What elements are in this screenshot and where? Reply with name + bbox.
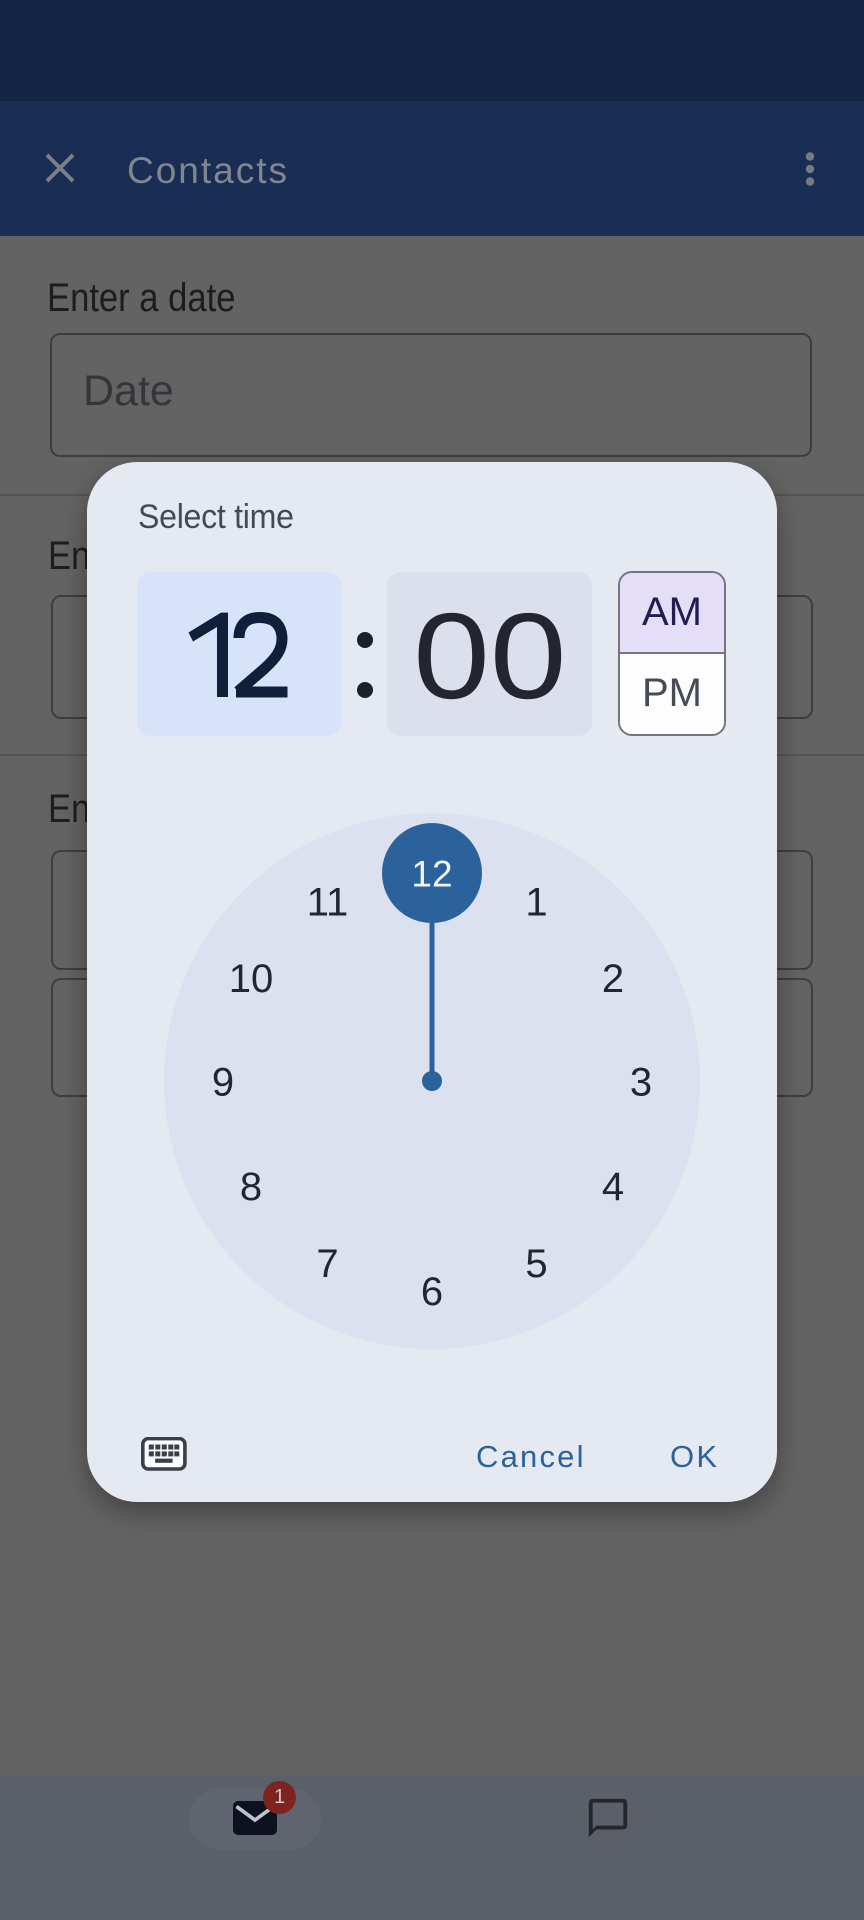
svg-text:6: 6 bbox=[421, 1270, 443, 1314]
svg-text:5: 5 bbox=[525, 1242, 547, 1286]
svg-text:7: 7 bbox=[316, 1242, 338, 1286]
svg-text:3: 3 bbox=[630, 1061, 652, 1105]
svg-text:8: 8 bbox=[240, 1165, 262, 1209]
svg-text:9: 9 bbox=[212, 1061, 234, 1105]
svg-text:12: 12 bbox=[411, 854, 452, 895]
svg-text:10: 10 bbox=[229, 957, 274, 1001]
svg-text:11: 11 bbox=[307, 881, 349, 925]
svg-text:1: 1 bbox=[525, 881, 547, 925]
svg-text:2: 2 bbox=[602, 957, 624, 1001]
svg-text:4: 4 bbox=[602, 1165, 624, 1209]
